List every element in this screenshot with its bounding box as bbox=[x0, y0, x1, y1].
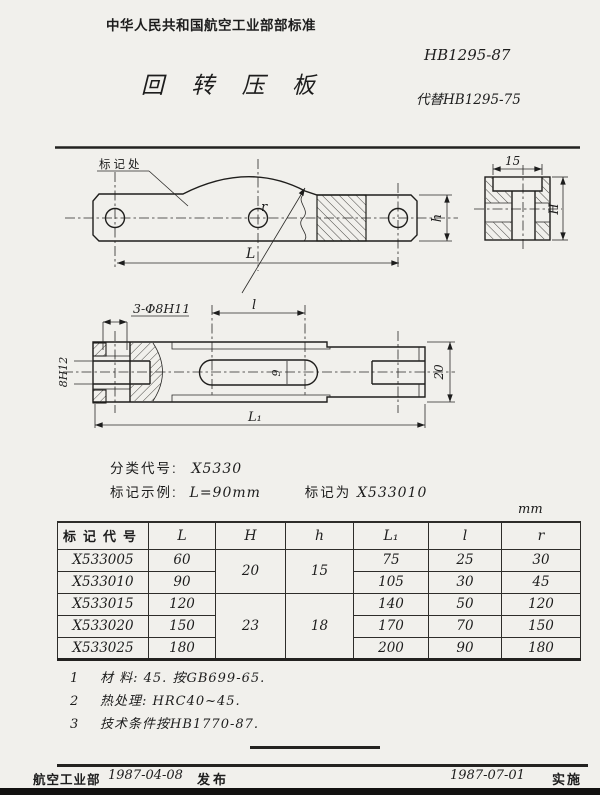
classification-code-line: 分类代号: X5330 bbox=[110, 457, 242, 477]
end-hatch-bl bbox=[486, 222, 511, 239]
col-header-L: L bbox=[149, 522, 216, 549]
footer-issuer: 航空工业部 bbox=[33, 769, 101, 788]
note-3-number: 3 bbox=[70, 713, 100, 736]
note-2: 2 热处理: HRC40~45. bbox=[70, 690, 265, 713]
cell-L: 180 bbox=[149, 637, 216, 659]
col-header-L1: L₁ bbox=[354, 522, 429, 549]
col-header-l: l bbox=[429, 522, 502, 549]
cell-h-merged: 18 bbox=[286, 593, 354, 659]
dim-slot-width-label: 9 bbox=[270, 370, 283, 377]
cell-code: X533025 bbox=[58, 637, 149, 659]
replaces-note: 代替HB1295-75 bbox=[416, 88, 521, 108]
table-row: X533005 60 20 15 75 25 30 bbox=[58, 549, 581, 571]
col-header-r: r bbox=[502, 522, 581, 549]
scan-edge-strip bbox=[0, 788, 600, 795]
cell-l: 90 bbox=[429, 637, 502, 659]
cell-code: X533010 bbox=[58, 571, 149, 593]
mark-location-label: 标记处 bbox=[99, 158, 143, 171]
standard-document-page: 中华人民共和国航空工业部部标准 HB1295-87 回 转 压 板 代替HB12… bbox=[0, 0, 600, 795]
cell-code: X533005 bbox=[58, 549, 149, 571]
dim-h-label: h bbox=[430, 214, 445, 222]
designation-example-condition: L=90mm bbox=[190, 485, 261, 501]
note-2-number: 2 bbox=[70, 690, 100, 713]
cell-r: 45 bbox=[502, 571, 581, 593]
dim-20-label: 20 bbox=[432, 364, 446, 381]
col-header-h: h bbox=[286, 522, 354, 549]
dim-holes-label: 3-Φ8H11 bbox=[133, 301, 190, 316]
cell-l: 70 bbox=[429, 615, 502, 637]
cell-H-merged: 20 bbox=[216, 549, 286, 593]
classification-code-value: X5330 bbox=[192, 461, 243, 477]
cell-l: 30 bbox=[429, 571, 502, 593]
note-3: 3 技术条件按HB1770-87. bbox=[70, 713, 265, 736]
cell-l: 25 bbox=[429, 549, 502, 571]
cell-L1: 105 bbox=[354, 571, 429, 593]
dim-r-label: r bbox=[261, 200, 268, 215]
cell-L1: 170 bbox=[354, 615, 429, 637]
dim-L-label: L bbox=[245, 246, 255, 262]
front-view: 标记处 r h L bbox=[65, 158, 458, 293]
prong-hatch-bottom bbox=[93, 390, 106, 403]
notes-list: 1 材 料: 45. 按GB699-65. 2 热处理: HRC40~45. 3… bbox=[70, 667, 265, 736]
footer-issue-date: 1987-04-08 bbox=[108, 768, 183, 783]
unit-label: mm bbox=[518, 502, 543, 517]
cell-r: 180 bbox=[502, 637, 581, 659]
classification-code-label: 分类代号: bbox=[110, 461, 178, 476]
footer-rule bbox=[57, 764, 588, 767]
cell-H-merged: 23 bbox=[216, 593, 286, 659]
top-view: 3-Φ8H11 l 8H12 9 20 L₁ bbox=[57, 298, 455, 428]
end-hatch-br bbox=[536, 222, 549, 239]
section-hatch bbox=[317, 195, 366, 241]
note-1-number: 1 bbox=[70, 667, 100, 690]
cell-h-merged: 15 bbox=[286, 549, 354, 593]
cell-L: 60 bbox=[149, 549, 216, 571]
dim-H-label: H bbox=[547, 203, 562, 216]
cell-L: 90 bbox=[149, 571, 216, 593]
col-header-code: 标记代号 bbox=[58, 522, 149, 549]
cell-r: 120 bbox=[502, 593, 581, 615]
dim-15-label: 15 bbox=[505, 154, 520, 168]
dim-L1-label: L₁ bbox=[247, 410, 262, 425]
dim-fork-slot-label: 8H12 bbox=[57, 357, 70, 388]
cell-L1: 200 bbox=[354, 637, 429, 659]
footer-implement-date: 1987-07-01 bbox=[450, 768, 525, 783]
footer-mini-rule bbox=[250, 746, 380, 749]
cell-l: 50 bbox=[429, 593, 502, 615]
end-view: 15 H bbox=[474, 154, 568, 252]
prong-hatch-top bbox=[93, 343, 106, 356]
table-row: X533015 120 23 18 140 50 120 bbox=[58, 593, 581, 615]
cell-L1: 75 bbox=[354, 549, 429, 571]
footer-issue-label: 发布 bbox=[197, 769, 229, 788]
note-2-text: 热处理: HRC40~45. bbox=[100, 690, 241, 713]
col-header-H: H bbox=[216, 522, 286, 549]
designation-example-line: 标记示例: L=90mm 标记为 X533010 bbox=[110, 481, 427, 501]
cell-code: X533020 bbox=[58, 615, 149, 637]
designation-value: X533010 bbox=[357, 485, 427, 501]
dimension-table: 标记代号 L H h L₁ l r X533005 60 20 15 75 25 bbox=[57, 521, 581, 661]
note-1: 1 材 料: 45. 按GB699-65. bbox=[70, 667, 265, 690]
technical-drawing: 标记处 r h L bbox=[0, 145, 600, 445]
dimension-table-wrap: 标记代号 L H h L₁ l r X533005 60 20 15 75 25 bbox=[57, 521, 580, 661]
standard-org-title: 中华人民共和国航空工业部部标准 bbox=[106, 14, 316, 34]
cell-L: 150 bbox=[149, 615, 216, 637]
cell-code: X533015 bbox=[58, 593, 149, 615]
standard-number: HB1295-87 bbox=[424, 46, 510, 64]
cell-r: 30 bbox=[502, 549, 581, 571]
designation-label: 标记为 bbox=[305, 485, 352, 500]
note-1-text: 材 料: 45. 按GB699-65. bbox=[100, 667, 265, 690]
dim-l-label: l bbox=[252, 298, 256, 313]
designation-example-label: 标记示例: bbox=[110, 485, 178, 500]
page-title: 回 转 压 板 bbox=[141, 66, 325, 100]
table-header-row: 标记代号 L H h L₁ l r bbox=[58, 522, 581, 549]
footer-implement-label: 实施 bbox=[552, 769, 582, 788]
cell-L1: 140 bbox=[354, 593, 429, 615]
cell-r: 150 bbox=[502, 615, 581, 637]
cell-L: 120 bbox=[149, 593, 216, 615]
note-3-text: 技术条件按HB1770-87. bbox=[100, 713, 259, 736]
center-slot bbox=[199, 360, 317, 385]
